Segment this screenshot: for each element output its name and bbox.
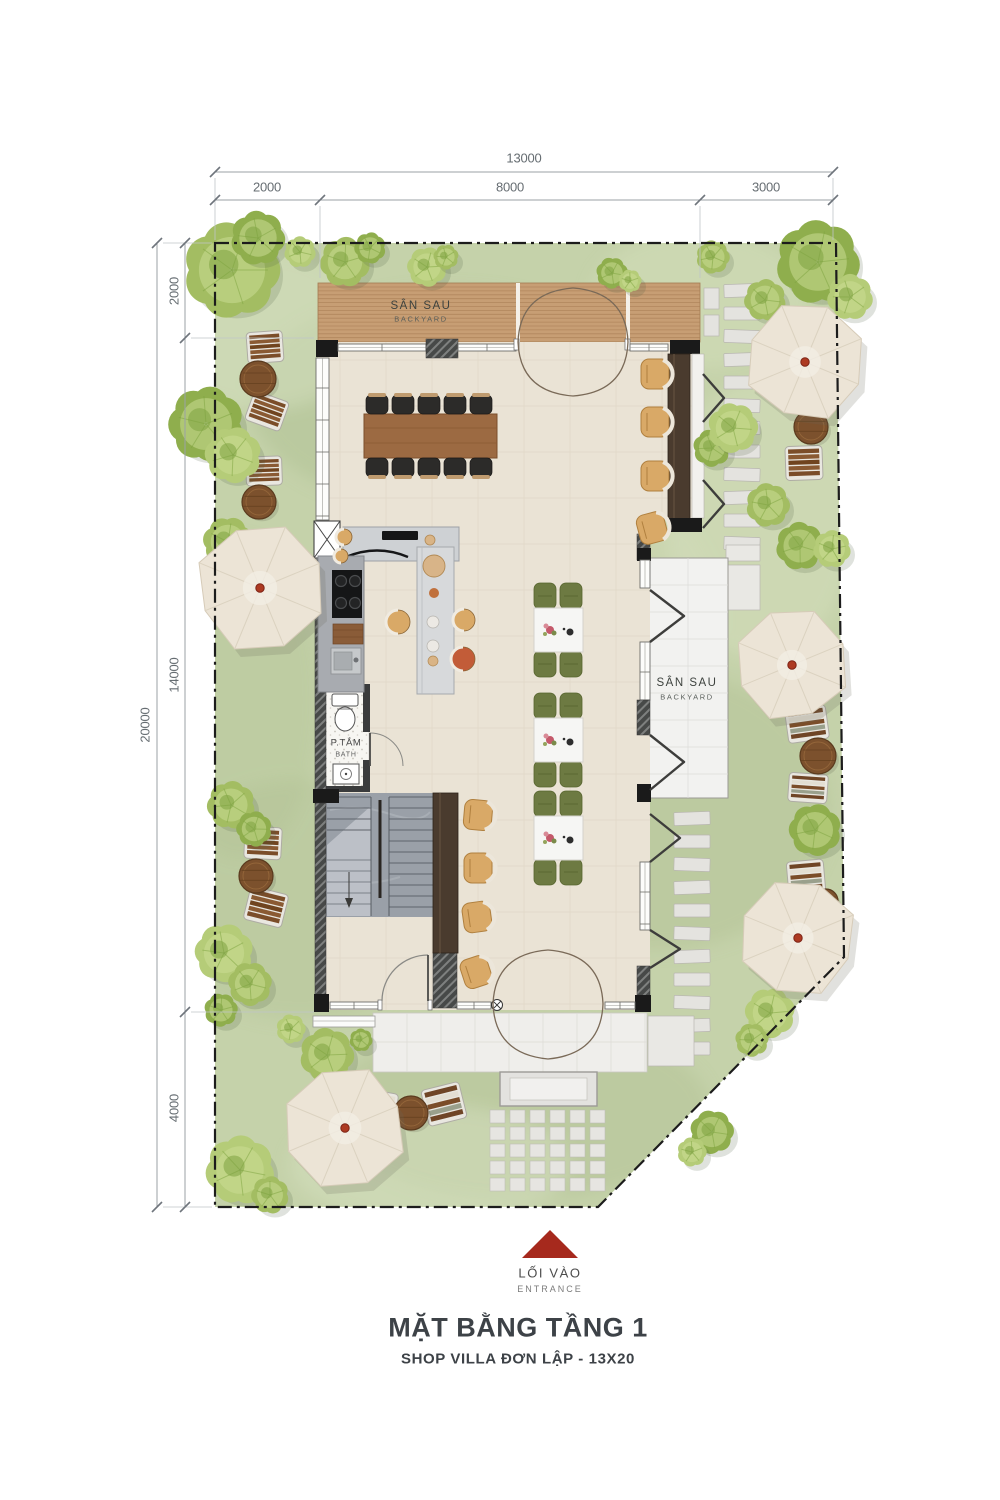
dining-chair	[392, 395, 414, 414]
dining-chair	[418, 458, 440, 477]
floor-plan-page: 13000 2000 8000 3000 20000 2000 14000 40…	[0, 0, 1000, 1500]
paver	[490, 1144, 505, 1157]
armchair	[641, 359, 673, 389]
paver	[570, 1144, 585, 1157]
armchair	[641, 461, 673, 491]
paver	[570, 1110, 585, 1123]
paver	[570, 1127, 585, 1140]
paver	[530, 1161, 545, 1174]
outdoor-bench	[788, 772, 829, 804]
paver	[550, 1161, 565, 1174]
dining-chair	[444, 395, 466, 414]
paver	[510, 1144, 525, 1157]
paver	[490, 1110, 505, 1123]
front-porch	[373, 1013, 647, 1072]
armchair	[463, 799, 497, 832]
paver	[590, 1110, 605, 1123]
patio-backyard	[648, 558, 728, 798]
stepping-stone	[674, 857, 710, 871]
dining-chair	[366, 458, 388, 477]
paver	[590, 1144, 605, 1157]
armchair	[641, 407, 673, 437]
stepping-stone	[674, 949, 710, 963]
paver	[590, 1127, 605, 1140]
paver	[510, 1161, 525, 1174]
staircase	[325, 793, 435, 917]
dining-chair	[470, 395, 492, 414]
paver	[530, 1144, 545, 1157]
dining-chair	[392, 458, 414, 477]
paver	[550, 1127, 565, 1140]
paver	[490, 1178, 505, 1191]
paver	[510, 1178, 525, 1191]
paver	[490, 1127, 505, 1140]
paver	[510, 1110, 525, 1123]
stepping-stone	[724, 467, 760, 481]
paver	[510, 1127, 525, 1140]
paver	[570, 1161, 585, 1174]
stepping-stone	[674, 811, 710, 825]
dining-chair	[366, 395, 388, 414]
site-plan-graphic	[0, 0, 1000, 1500]
dining-table-large	[364, 393, 497, 479]
paver	[550, 1178, 565, 1191]
dining-chair	[418, 395, 440, 414]
paver	[550, 1110, 565, 1123]
paver	[530, 1110, 545, 1123]
stepping-stone	[674, 880, 710, 894]
paver	[590, 1161, 605, 1174]
entrance-arrow-icon	[522, 1230, 578, 1258]
outdoor-bench	[785, 445, 823, 480]
outdoor-bench	[246, 330, 284, 363]
paver	[550, 1144, 565, 1157]
dining-chair	[444, 458, 466, 477]
stepping-stone	[674, 904, 710, 917]
paver	[530, 1178, 545, 1191]
paver	[490, 1161, 505, 1174]
stepping-stone	[674, 926, 710, 940]
stepping-stone	[674, 995, 710, 1009]
paver	[530, 1127, 545, 1140]
armchair	[461, 900, 496, 934]
paver	[590, 1178, 605, 1191]
armchair	[464, 853, 496, 883]
paver	[570, 1178, 585, 1191]
stepping-stone	[674, 973, 710, 986]
dining-chair	[470, 458, 492, 477]
